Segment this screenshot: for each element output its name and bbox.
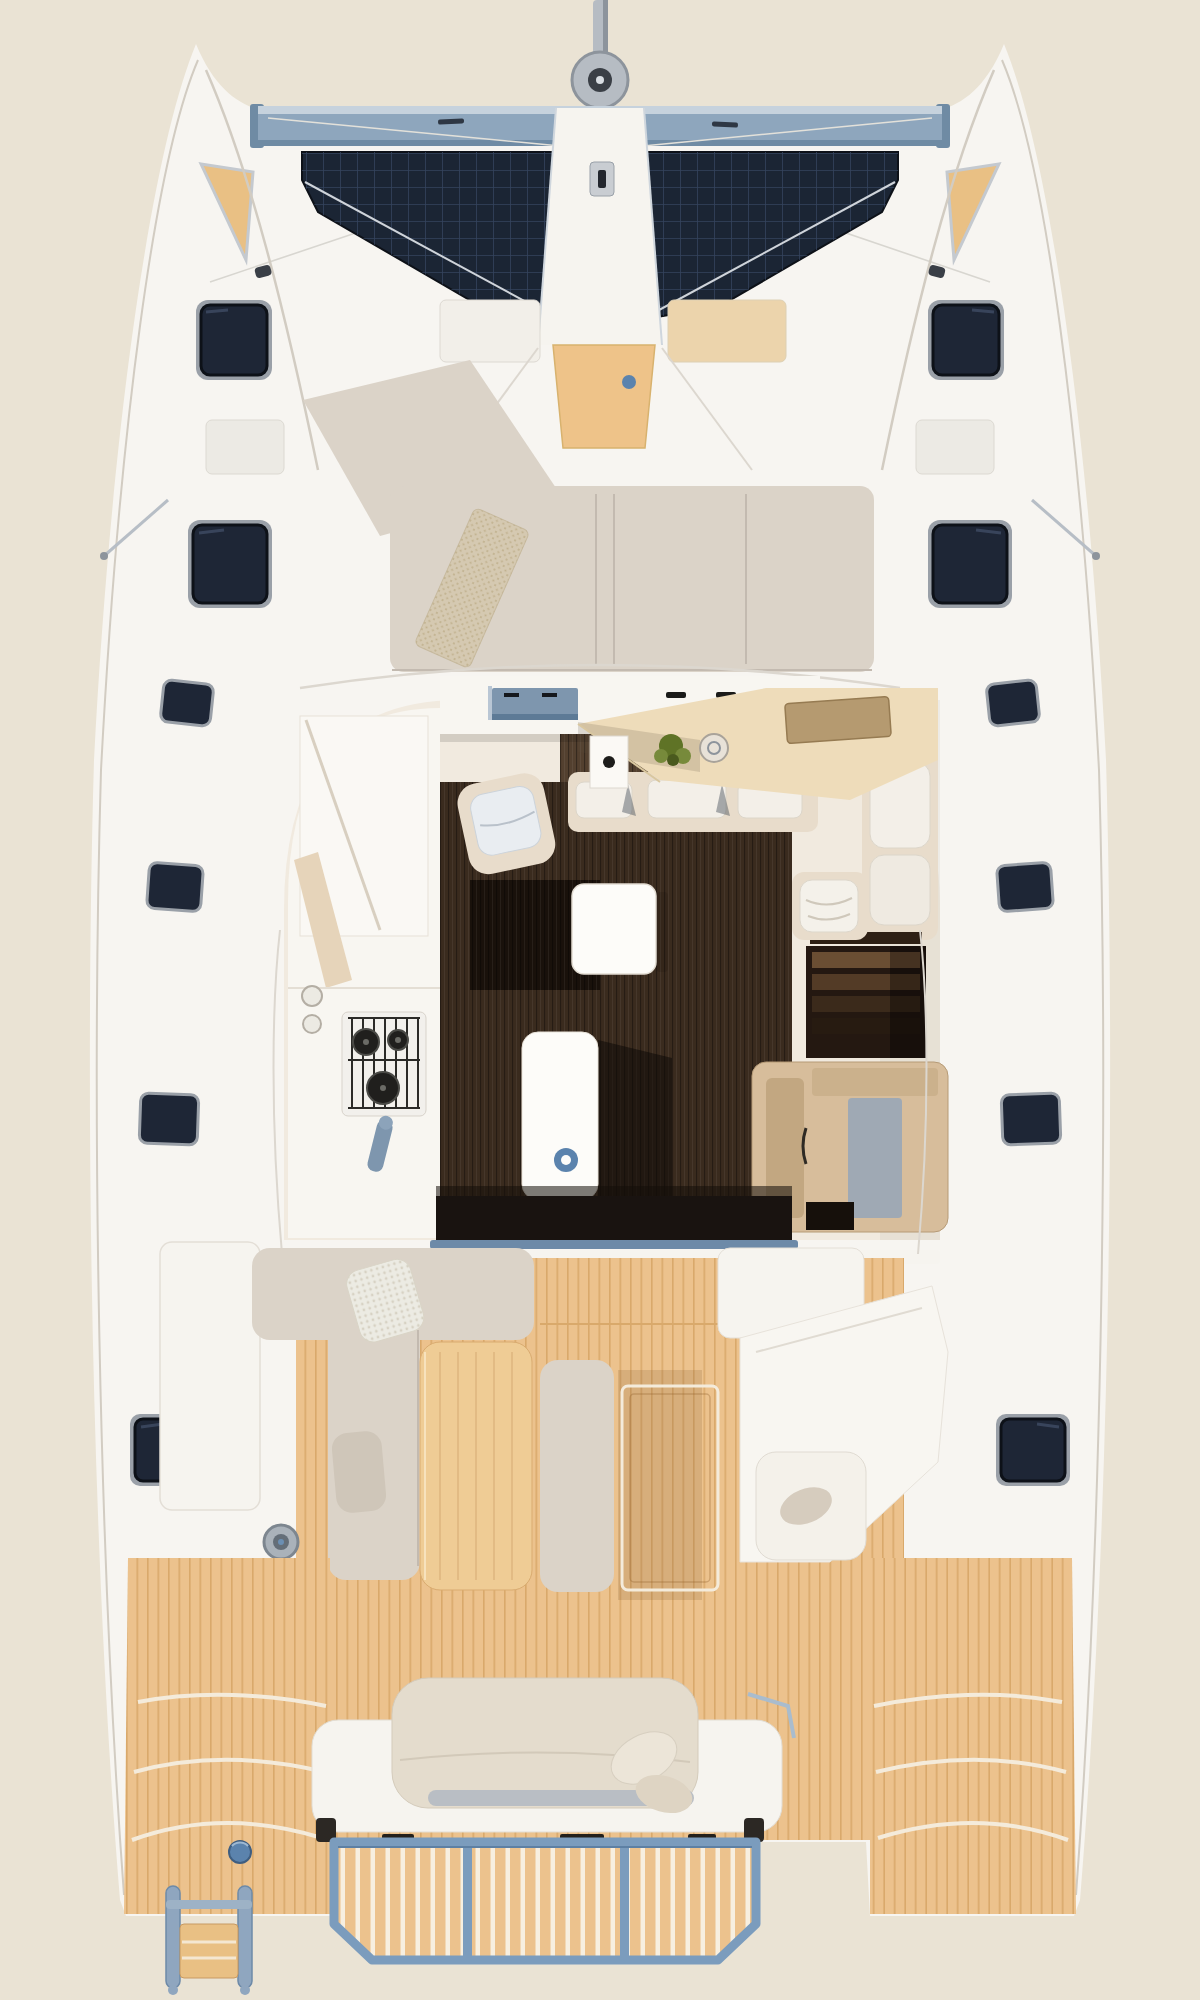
saloon: [284, 676, 948, 1264]
transom-starboard: [870, 1558, 1076, 1914]
transom-port: [124, 1558, 330, 1914]
nav-seat: [792, 872, 868, 940]
galley-sink: [303, 1015, 321, 1033]
port-console: [160, 1242, 260, 1510]
bow-walkway: [538, 108, 662, 345]
deck-fill-cap: [622, 375, 636, 389]
companionway-stairs: [806, 932, 926, 1058]
stove: [342, 1012, 426, 1116]
winch: [264, 1525, 298, 1559]
oven-unit: [590, 736, 628, 788]
anchor-locker-lid: [553, 345, 655, 448]
galley-island: [522, 1032, 598, 1200]
galley: [288, 708, 440, 1238]
counter-vent: [666, 692, 686, 698]
counter-sink: [700, 734, 728, 762]
cockpit-table: [420, 1342, 532, 1590]
galley-hob: [488, 686, 578, 720]
catamaran-deck-plan: Top-down 3D rendered deck plan of a sail…: [0, 0, 1200, 2000]
galley-sink: [302, 986, 322, 1006]
dining-table: [572, 884, 668, 974]
cutting-board: [785, 696, 892, 743]
locker-lid-starboard: [668, 300, 786, 362]
transom-cleat: [229, 1841, 251, 1863]
locker-lid-port: [440, 300, 540, 362]
deck-plan-render: Top-down 3D rendered deck plan of a sail…: [0, 0, 1200, 2000]
table-bench-cushion: [540, 1360, 614, 1592]
seat-cushion: [331, 1430, 388, 1514]
swim-platform: [334, 1842, 756, 1960]
